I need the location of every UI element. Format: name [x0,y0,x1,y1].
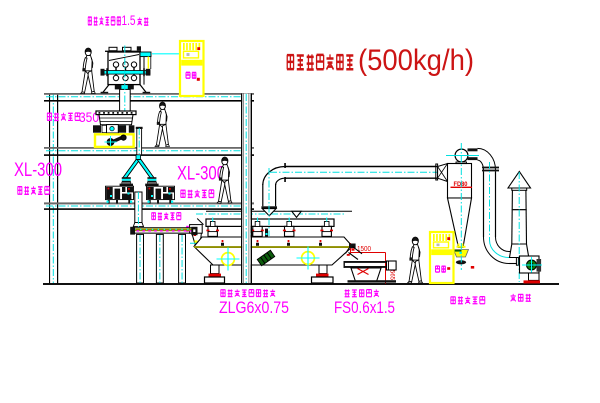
svg-text:FS0.6x1.5: FS0.6x1.5 [334,298,395,317]
svg-text:(500kg/h): (500kg/h) [358,44,474,77]
svg-text:FD80: FD80 [454,181,468,188]
svg-text:ZLG6x0.75: ZLG6x0.75 [219,298,289,317]
svg-text:1.5: 1.5 [122,12,136,28]
svg-text:565: 565 [389,270,395,281]
svg-text:XL-300: XL-300 [14,160,62,181]
svg-text:XL-300: XL-300 [177,164,225,185]
